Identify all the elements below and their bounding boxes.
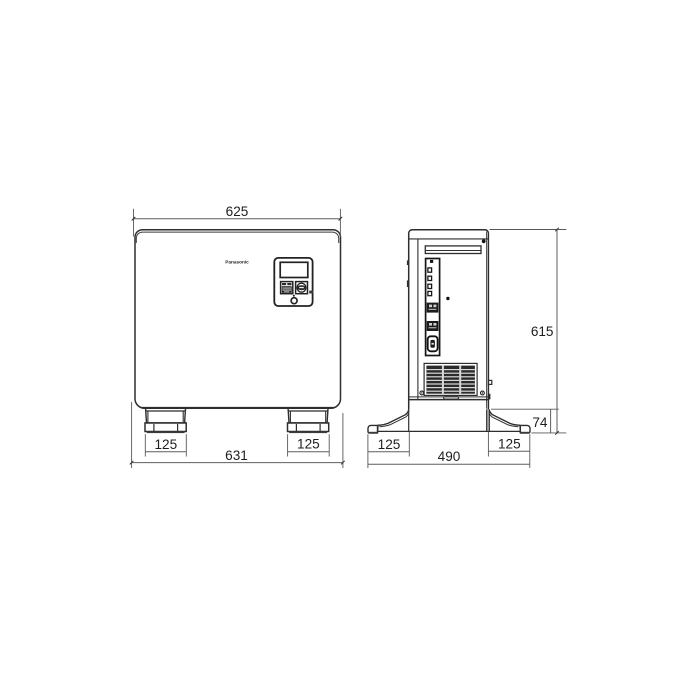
svg-text:490: 490 bbox=[438, 449, 461, 464]
svg-text:125: 125 bbox=[378, 437, 401, 452]
svg-text:125: 125 bbox=[154, 437, 177, 452]
svg-text:125: 125 bbox=[498, 436, 521, 451]
svg-text:625: 625 bbox=[226, 204, 249, 219]
svg-text:125: 125 bbox=[297, 437, 320, 452]
svg-text:74: 74 bbox=[532, 415, 548, 430]
svg-text:631: 631 bbox=[225, 448, 248, 463]
svg-text:615: 615 bbox=[531, 324, 554, 339]
svg-text:Panasonic: Panasonic bbox=[225, 259, 249, 264]
